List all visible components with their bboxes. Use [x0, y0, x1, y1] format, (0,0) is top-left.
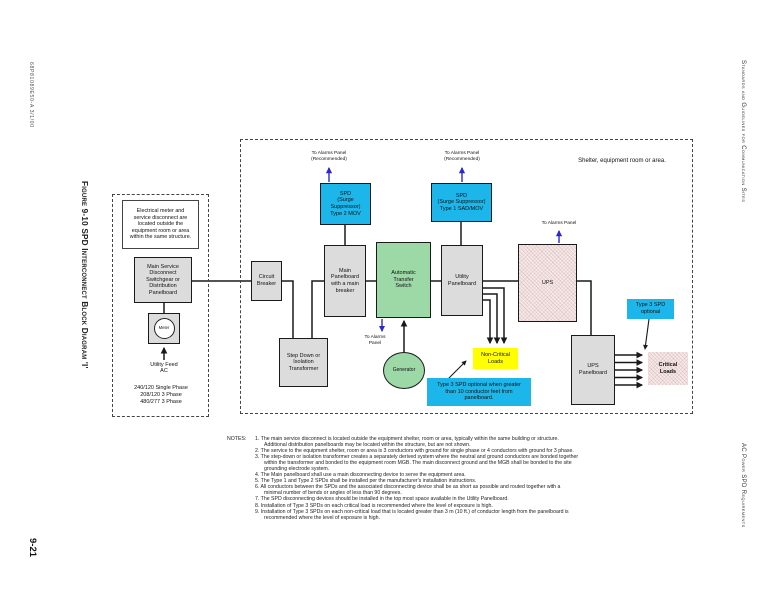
document-page: 68P81089E50-A 3/1/00 Figure 9-10 SPD Int… [0, 0, 776, 600]
main-service-disconnect-box: Main Service Disconnect Switchgear or Di… [134, 257, 192, 303]
main-panelboard-box: Main Panelboard with a main breaker [324, 245, 366, 317]
note-item: 6. All conductors between the SPDs and t… [255, 484, 579, 496]
transformer-box: Step Down or Isolation Transformer [279, 338, 328, 387]
notes-list: 1. The main service disconnect is locate… [255, 436, 579, 521]
type3-note-box: Type 3 SPD optional when greater than 10… [427, 378, 531, 406]
meter-dial: Meter [154, 318, 175, 339]
critical-loads-box: Critical Loads [648, 352, 688, 385]
note-item: 9. Installation of Type 3 SPDs on each n… [255, 509, 579, 521]
generator-circle: Generator [383, 352, 425, 389]
non-critical-loads-box: Non-Critical Loads [473, 348, 518, 369]
utility-panelboard-box: Utility Panelboard [441, 245, 483, 316]
ats-alarm-label: To Alarms Panel [357, 335, 393, 346]
spd1-alarm-label: To Alarms Panel (Recommended) [438, 151, 486, 162]
ups-panelboard-box: UPS Panelboard [571, 335, 615, 405]
ups-alarm-label: To Alarms Panel [534, 221, 584, 227]
automatic-transfer-switch-box: Automatic Transfer Switch [376, 242, 431, 318]
circuit-breaker-box: Circuit Breaker [251, 261, 282, 301]
outside-note: Electrical meter and service disconnect … [122, 200, 199, 249]
type3-optional-box: Type 3 SPD optional [627, 299, 674, 319]
shelter-label: Shelter, equipment room or area. [568, 159, 676, 165]
spd-type2-box: SPD (Surge Suppressor) Type 2 MOV [320, 183, 371, 225]
utility-feed-label: Utility Feed AC [140, 362, 188, 375]
notes-heading: NOTES: [227, 436, 246, 442]
ups-box: UPS [518, 244, 577, 322]
spd-type1-box: SPD (Surge Suppressor) Type 1 SAD/MOV [431, 183, 492, 222]
note-item: 1. The main service disconnect is locate… [255, 436, 579, 448]
meter-box: Meter [148, 313, 180, 344]
phases-label: 240/120 Single Phase 208/120 3 Phase 480… [114, 385, 208, 406]
spd2-alarm-label: To Alarms Panel (Recommended) [305, 151, 353, 162]
note-item: 3. The step-down or isolation transforme… [255, 454, 579, 472]
